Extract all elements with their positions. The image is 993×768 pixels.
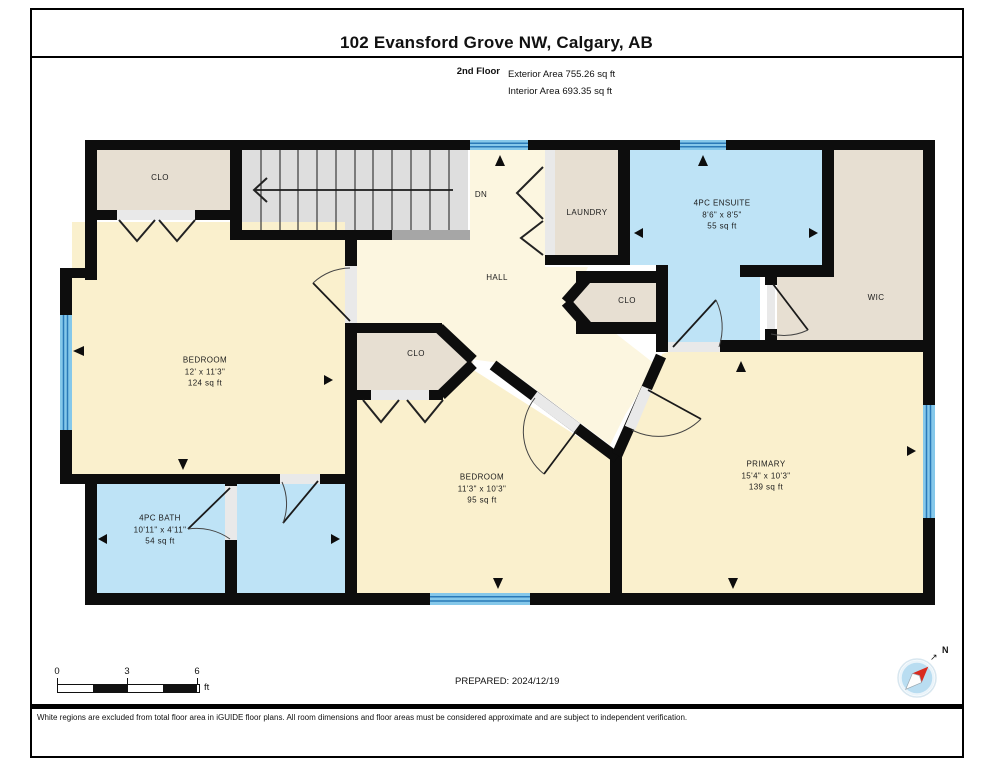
exterior-area: Exterior Area 755.26 sq ft <box>508 66 615 83</box>
room-label-primary: PRIMARY 15'4" x 10'3" 139 sq ft <box>741 459 790 494</box>
scale-bar: 0 3 6 ft <box>50 666 225 696</box>
scale-tick-6: 6 <box>194 666 199 677</box>
ensuite-corridor-fill <box>668 265 760 352</box>
room-label-wic: WIC <box>868 292 885 304</box>
room-label-hall: HALL <box>486 272 508 284</box>
footer-divider <box>30 704 964 709</box>
scale-tick-0: 0 <box>54 666 59 677</box>
disclaimer-text: White regions are excluded from total fl… <box>37 713 687 722</box>
room-label-laundry: LAUNDRY <box>567 207 608 219</box>
scale-bar-segments <box>57 684 200 693</box>
closet-south-fill <box>237 484 345 593</box>
stairs-dn-label: DN <box>475 189 487 201</box>
title-divider <box>30 56 964 58</box>
floor-plan-drawing: CLO DN HALL LAUNDRY 4PC ENSUITE 8'6" x 8… <box>57 133 943 615</box>
north-arrow-icon: ↗ <box>930 652 938 663</box>
bedroom-west-fill <box>72 222 345 474</box>
north-label: N <box>942 645 949 655</box>
room-label-clo-nw: CLO <box>151 172 169 184</box>
prepared-date: PREPARED: 2024/12/19 <box>455 676 559 687</box>
room-label-ensuite: 4PC ENSUITE 8'6" x 8'5" 55 sq ft <box>694 198 751 233</box>
room-label-bedroom-west: BEDROOM 12' x 11'3" 124 sq ft <box>183 355 227 390</box>
floor-plan-sheet: 102 Evansford Grove NW, Calgary, AB 2nd … <box>0 0 993 768</box>
room-label-bedroom-south: BEDROOM 11'3" x 10'3" 95 sq ft <box>458 472 506 507</box>
stairs-handrail <box>392 230 470 240</box>
interior-area: Interior Area 693.35 sq ft <box>508 83 615 100</box>
scale-tick-3: 3 <box>124 666 129 677</box>
laundry-fill <box>555 150 618 255</box>
scale-unit: ft <box>204 682 209 693</box>
area-summary: Exterior Area 755.26 sq ft Interior Area… <box>508 66 615 100</box>
room-label-clo-hall: CLO <box>407 348 425 360</box>
room-label-clo-ensuite: CLO <box>618 295 636 307</box>
room-label-bath: 4PC BATH 10'11" x 4'11" 54 sq ft <box>134 513 187 548</box>
page-title: 102 Evansford Grove NW, Calgary, AB <box>0 33 993 53</box>
floor-label: 2nd Floor <box>300 66 500 77</box>
